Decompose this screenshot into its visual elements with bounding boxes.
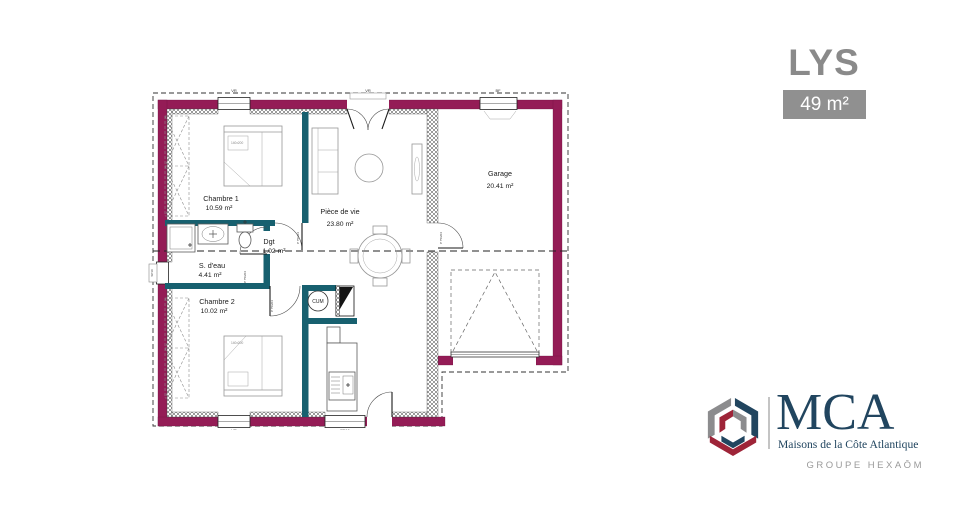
door-rear [367,392,392,417]
brand-subtitle: Maisons de la Côte Atlantique [778,438,926,451]
room-label-piece-de-vie: Pièce de vie [320,207,359,216]
living-furniture [312,128,422,411]
shower-icon [167,224,195,252]
room-area-chambre2: 10.02 m² [201,308,229,315]
wall-garage-right [553,100,562,365]
garage-partition-wall [427,109,438,223]
door-tag: P 75/204 [439,232,443,244]
window-tag: VR [231,428,237,430]
garage-door-icon [451,270,539,357]
room-area-degagement: 1.02 m² [262,248,286,255]
page: 140x200 140x200 [0,0,960,532]
door-tag: P 75/204 [270,300,274,312]
window-tag: PF10 [340,428,350,430]
washbasin-icon [198,224,228,244]
brand-logo-text: MCA [776,383,894,442]
eave-outline [153,93,568,426]
area-badge: 49 m² [783,90,866,119]
window-tag: BF [495,88,501,93]
electrical-panel-icon [336,286,354,316]
water-heater-label: CUM [312,299,323,305]
door-chambre2 [270,286,300,316]
brand-group-line: GROUPE HEXAŌM [696,460,924,471]
dining-table-icon [350,226,410,286]
window-icon [480,98,517,120]
brand-divider [768,397,770,449]
plan-title: LYS [772,42,876,84]
room-area-piece-de-vie: 23.80 m² [327,221,355,228]
entrance-door-icon [347,93,389,130]
room-area-chambre1: 10.59 m² [206,205,234,212]
coffee-table-icon [355,154,383,182]
toilet-icon [237,220,253,248]
window-icon [218,98,250,110]
door-tag: P 75/204 [296,232,300,244]
bathroom-fixtures [167,220,253,252]
tv-unit-icon [412,144,422,194]
side-opening-tag: SP10 [150,269,154,277]
mca-cube-icon [704,396,762,458]
room-area-sdeau: 4.41 m² [198,272,222,279]
bed-icon [224,336,282,396]
room-label-degagement: Dgt [263,237,274,246]
window-tag: VR [231,88,237,93]
window-icon [218,416,250,428]
bed-size-label: 140x200 [231,341,243,345]
room-label-chambre2: Chambre 2 [199,297,235,306]
door-tag: P 75/204 [243,271,247,283]
bed-icon [224,126,282,186]
wall-bottom [158,417,445,426]
opening-tags: VR VR BF VR PF10 SP10 P 75/204 P 75/204 … [150,88,501,430]
wall-garage-bottom-right [536,356,562,365]
room-label-garage: Garage [488,169,512,178]
window-icon [325,416,365,428]
floor-plan: 140x200 140x200 [140,80,590,430]
sofa-icon [312,128,338,194]
garage-partition-wall-lower [427,252,438,417]
brand-block: MCA Maisons de la Côte Atlantique GROUPE… [696,388,936,483]
kitchen-counter-icon [327,327,357,411]
bed-size-label: 140x200 [231,141,243,145]
room-label-sdeau: S. d'eau [199,261,225,270]
room-area-garage: 20.41 m² [487,183,515,190]
window-tag: VR [365,88,371,93]
room-label-chambre1: Chambre 1 [203,194,239,203]
